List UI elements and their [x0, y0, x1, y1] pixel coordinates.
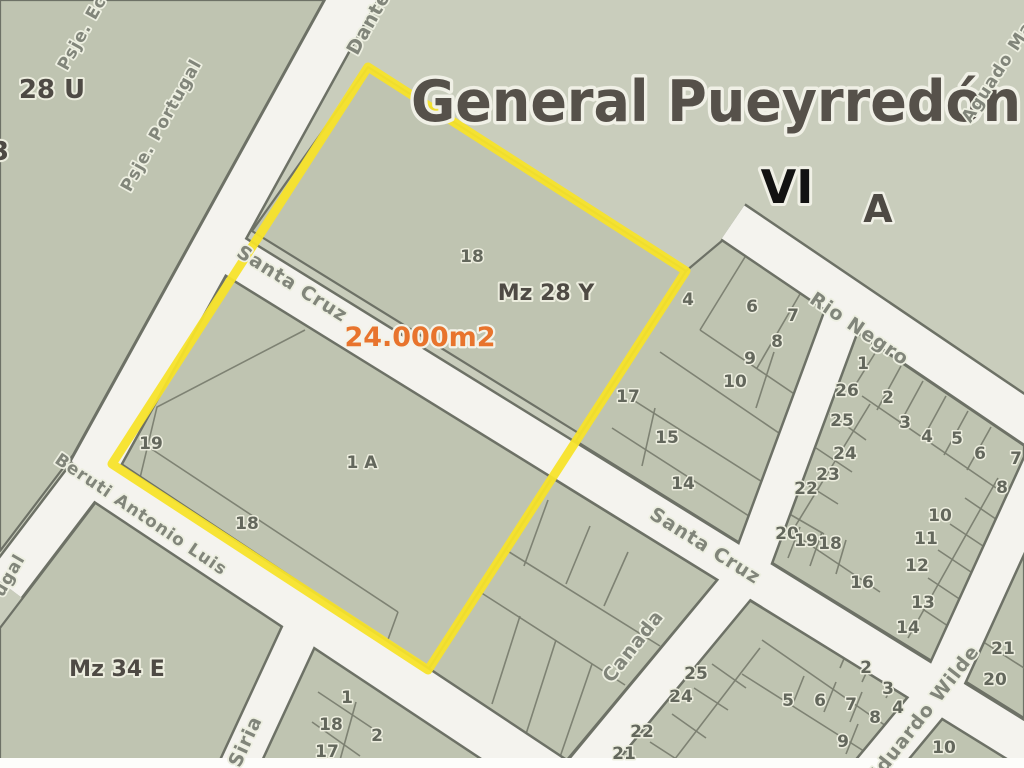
- lot-number-38: 3: [882, 679, 894, 699]
- district-title: General Pueyrredón: [411, 69, 1021, 135]
- lot-number-9: 10: [723, 372, 747, 392]
- lot-number-45: 8: [869, 708, 881, 728]
- lot-number-34: 14: [896, 618, 920, 638]
- lot-number-11: 15: [655, 428, 679, 448]
- lot-number-23: 7: [1010, 449, 1022, 469]
- lot-number-46: 22: [630, 722, 654, 742]
- lot-number-48: 21: [612, 744, 636, 764]
- lot-number-29: 19: [794, 531, 818, 551]
- lot-number-52: 2: [371, 726, 383, 746]
- lot-number-19: 5: [951, 429, 963, 449]
- lot-number-17: 3: [899, 413, 911, 433]
- block-id-mz-34-e: Mz 34 E: [69, 657, 165, 682]
- lot-number-22: 23: [816, 465, 840, 485]
- block-id-28-u: 28 U: [19, 75, 85, 105]
- lot-number-26: 10: [928, 506, 952, 526]
- lot-number-5: 6: [746, 297, 758, 317]
- cadastral-map[interactable]: General PueyrredónVIA24.000m2Mz 28 YMz 3…: [0, 0, 1024, 768]
- lot-number-39: 4: [892, 698, 904, 718]
- lot-number-25: 8: [996, 478, 1008, 498]
- lot-number-13: 1: [857, 354, 869, 374]
- lot-number-43: 6: [814, 691, 826, 711]
- lot-number-41: 24: [669, 687, 693, 707]
- lot-number-12: 14: [671, 474, 695, 494]
- lot-number-33: 13: [911, 593, 935, 613]
- lot-number-30: 18: [818, 534, 842, 554]
- lot-number-18: 4: [921, 427, 933, 447]
- lot-number-32: 16: [850, 573, 874, 593]
- parcel-area-label: 24.000m2: [344, 322, 495, 353]
- map-viewport[interactable]: General PueyrredónVIA24.000m2Mz 28 YMz 3…: [0, 0, 1024, 768]
- lot-number-35: 21: [991, 639, 1015, 659]
- lot-number-16: 25: [830, 411, 854, 431]
- lot-number-40: 25: [684, 664, 708, 684]
- lot-number-14: 26: [835, 381, 859, 401]
- lot-number-21: 6: [974, 444, 986, 464]
- lot-number-24: 22: [794, 479, 818, 499]
- lot-number-7: 8: [771, 332, 783, 352]
- block-id-mz-28-y: Mz 28 Y: [498, 281, 596, 306]
- lot-number-1: 19: [139, 434, 163, 454]
- lot-number-50: 1: [341, 688, 353, 708]
- lot-number-20: 24: [833, 444, 857, 464]
- lot-number-6: 7: [787, 306, 799, 326]
- lot-number-15: 2: [882, 388, 894, 408]
- lot-number-37: 2: [860, 658, 872, 678]
- lot-number-44: 7: [845, 695, 857, 715]
- lot-number-53: 17: [315, 742, 339, 762]
- section-roman-numeral: VI: [761, 160, 814, 214]
- lot-number-36: 20: [983, 670, 1007, 690]
- partial-left-edge-label: 3: [0, 137, 9, 167]
- lot-number-3: 1 A: [347, 453, 379, 473]
- lot-number-27: 11: [914, 529, 938, 549]
- lot-number-0: 18: [460, 247, 484, 267]
- lot-number-8: 9: [744, 349, 756, 369]
- lot-number-42: 5: [782, 691, 794, 711]
- lot-number-4: 4: [682, 290, 694, 310]
- lot-number-2: 18: [235, 514, 259, 534]
- lot-number-51: 18: [319, 715, 343, 735]
- lot-number-47: 9: [837, 732, 849, 752]
- lot-number-49: 10: [932, 738, 956, 758]
- zone-letter: A: [863, 187, 893, 231]
- lot-number-31: 12: [905, 556, 929, 576]
- lot-number-10: 17: [616, 387, 640, 407]
